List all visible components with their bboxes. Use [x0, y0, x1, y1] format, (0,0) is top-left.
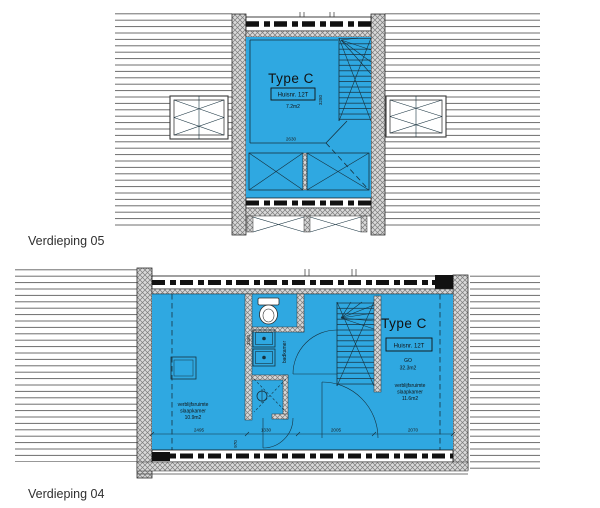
wall-right	[371, 14, 385, 235]
floor4-caption: Verdieping 04	[28, 487, 105, 501]
floor5-plan: Type C Huisnr. 12T 7.2m2 2630 3280	[115, 10, 540, 235]
bathroom-label: badkamer	[282, 341, 288, 364]
stair-icon	[339, 38, 371, 121]
roof-window-icon	[170, 96, 228, 139]
facade-band-bottom	[137, 450, 468, 474]
floor5-caption: Verdieping 05	[28, 234, 105, 248]
floor5-huisnr: Huisnr. 12T	[278, 93, 309, 99]
go-area: 32.3m2	[400, 366, 417, 372]
svg-text:slaapkamer: slaapkamer	[397, 390, 423, 396]
dimension-3380: 3380	[246, 334, 251, 345]
dimension-width: 2630	[286, 137, 297, 142]
stair-icon	[337, 302, 374, 386]
svg-text:verblijfsruimte: verblijfsruimte	[395, 383, 426, 389]
dimension-1330: 1330	[261, 428, 272, 433]
wall-left	[232, 14, 246, 235]
go-label: GO	[404, 358, 412, 364]
roof-left	[15, 268, 137, 462]
svg-text:verblijfsruimte: verblijfsruimte	[178, 402, 209, 408]
roof-window-icon	[386, 96, 446, 137]
facade-band-bottom	[246, 198, 371, 216]
floor5-type-label: Type C	[268, 71, 314, 86]
roof-right	[470, 275, 540, 470]
svg-text:10.9m2: 10.9m2	[185, 415, 202, 421]
floorplan-drawing: Type C Huisnr. 12T 7.2m2 2630 3280 Verdi…	[0, 0, 600, 508]
wall-right	[453, 275, 468, 470]
svg-text:slaapkamer: slaapkamer	[180, 409, 206, 415]
dimension-2005: 2005	[331, 428, 342, 433]
dimension-2495: 2495	[194, 428, 205, 433]
svg-text:11.6m2: 11.6m2	[402, 396, 419, 402]
floor4-huisnr: Huisnr. 12T	[394, 344, 425, 350]
truss-detail	[247, 216, 367, 232]
toilet-symbol	[258, 298, 279, 324]
wall-left	[137, 268, 152, 478]
dimension-height: 3280	[318, 94, 323, 105]
dimension-970: 970	[233, 440, 238, 448]
floor4-type-label: Type C	[381, 316, 427, 331]
floor5-area: 7.2m2	[286, 104, 300, 110]
floorplan-sheet: Type C Huisnr. 12T 7.2m2 2630 3280 Verdi…	[0, 0, 600, 508]
dimension-2070: 2070	[408, 428, 419, 433]
facade-band-top	[246, 12, 371, 37]
facade-band-top	[152, 269, 453, 294]
floor4-plan: Type C Huisnr. 12T GO 32.3m2 verblijfsru…	[15, 268, 540, 478]
